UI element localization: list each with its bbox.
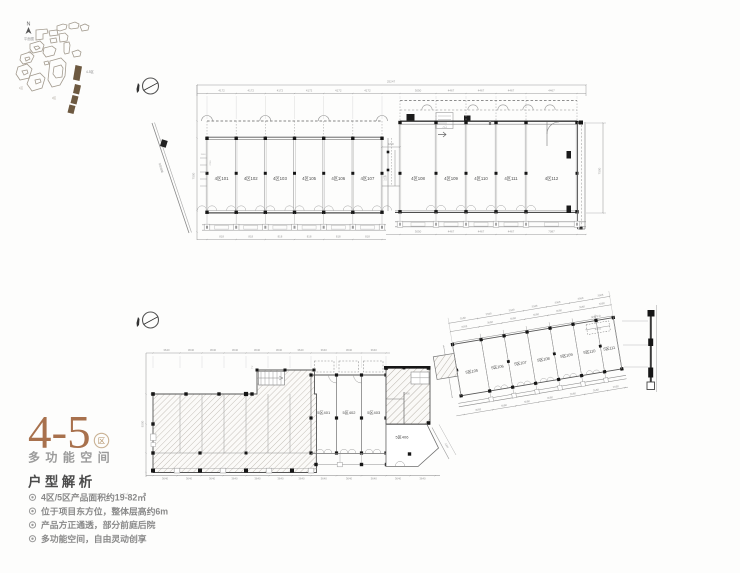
svg-text:4467: 4467 bbox=[448, 89, 455, 93]
svg-text:2400: 2400 bbox=[404, 393, 410, 396]
svg-text:4172: 4172 bbox=[277, 89, 284, 93]
svg-text:818: 818 bbox=[248, 234, 253, 238]
svg-text:过道: 过道 bbox=[383, 175, 387, 181]
svg-text:产品方正通透，部分前庭后院: 产品方正通透，部分前庭后院 bbox=[41, 519, 156, 530]
svg-text:818: 818 bbox=[307, 234, 312, 238]
svg-text:4区105: 4区105 bbox=[302, 176, 316, 181]
svg-text:1区: 1区 bbox=[19, 86, 24, 90]
svg-text:8200: 8200 bbox=[141, 420, 145, 427]
svg-text:3640: 3640 bbox=[210, 348, 217, 352]
svg-text:818: 818 bbox=[278, 234, 283, 238]
svg-text:4467: 4467 bbox=[508, 89, 515, 93]
svg-text:3640: 3640 bbox=[371, 348, 378, 352]
svg-text:5区402: 5区402 bbox=[343, 410, 357, 415]
svg-text:3640: 3640 bbox=[209, 477, 216, 481]
svg-text:平面图: 平面图 bbox=[24, 36, 35, 41]
svg-text:4467: 4467 bbox=[478, 89, 485, 93]
svg-text:4区110: 4区110 bbox=[474, 176, 488, 181]
svg-text:4区107: 4区107 bbox=[360, 176, 374, 181]
svg-text:4172: 4172 bbox=[364, 89, 371, 93]
svg-text:25247: 25247 bbox=[387, 80, 396, 84]
svg-text:4区102: 4区102 bbox=[244, 176, 258, 181]
svg-text:3050: 3050 bbox=[415, 89, 422, 93]
svg-text:5区401: 5区401 bbox=[317, 410, 331, 415]
svg-text:3640: 3640 bbox=[371, 477, 378, 481]
svg-text:3640: 3640 bbox=[298, 477, 305, 481]
svg-text:4467: 4467 bbox=[448, 230, 455, 234]
svg-text:818: 818 bbox=[365, 234, 370, 238]
svg-text:3640: 3640 bbox=[346, 348, 353, 352]
svg-text:4区111: 4区111 bbox=[504, 176, 518, 181]
svg-text:3640: 3640 bbox=[419, 477, 426, 481]
svg-text:入口: 入口 bbox=[442, 125, 447, 129]
svg-text:多功能空间: 多功能空间 bbox=[28, 450, 115, 465]
svg-text:7500: 7500 bbox=[192, 172, 196, 179]
svg-text:4区106: 4区106 bbox=[331, 176, 345, 181]
svg-text:3640: 3640 bbox=[188, 348, 195, 352]
svg-text:7087: 7087 bbox=[548, 230, 555, 234]
svg-text:上: 上 bbox=[251, 365, 254, 369]
svg-text:3640: 3640 bbox=[395, 477, 402, 481]
svg-text:1800: 1800 bbox=[388, 142, 394, 146]
svg-text:3640: 3640 bbox=[276, 348, 283, 352]
svg-text:4172: 4172 bbox=[335, 89, 342, 93]
svg-text:4172: 4172 bbox=[248, 89, 255, 93]
svg-text:3640: 3640 bbox=[321, 348, 328, 352]
svg-text:5区403: 5区403 bbox=[367, 410, 381, 415]
svg-text:3640: 3640 bbox=[346, 477, 353, 481]
svg-text:5区406: 5区406 bbox=[396, 435, 410, 440]
svg-text:区: 区 bbox=[98, 437, 106, 446]
svg-text:位于项目东方位，整体层高约6m: 位于项目东方位，整体层高约6m bbox=[41, 505, 168, 516]
svg-text:818: 818 bbox=[336, 234, 341, 238]
svg-text:N: N bbox=[27, 22, 31, 28]
svg-text:3区: 3区 bbox=[52, 96, 57, 100]
svg-text:2700: 2700 bbox=[210, 160, 212, 166]
svg-text:1500: 1500 bbox=[201, 154, 207, 156]
svg-text:3640: 3640 bbox=[186, 477, 193, 481]
svg-text:4467: 4467 bbox=[478, 230, 485, 234]
svg-text:4-5区: 4-5区 bbox=[86, 70, 95, 74]
svg-text:3640: 3640 bbox=[254, 477, 261, 481]
svg-text:户型解析: 户型解析 bbox=[28, 474, 96, 490]
svg-text:4区101: 4区101 bbox=[215, 176, 229, 181]
svg-text:7500: 7500 bbox=[598, 167, 602, 174]
svg-text:3640: 3640 bbox=[254, 348, 261, 352]
svg-text:4172: 4172 bbox=[218, 89, 225, 93]
svg-text:3050: 3050 bbox=[415, 230, 422, 234]
svg-text:4467: 4467 bbox=[548, 89, 555, 93]
svg-text:3640: 3640 bbox=[231, 477, 238, 481]
svg-text:4区112: 4区112 bbox=[545, 176, 559, 181]
svg-text:3640: 3640 bbox=[162, 477, 169, 481]
svg-text:3640: 3640 bbox=[277, 477, 284, 481]
svg-text:3640: 3640 bbox=[232, 348, 239, 352]
svg-text:818: 818 bbox=[219, 234, 224, 238]
svg-text:4区103: 4区103 bbox=[273, 176, 287, 181]
svg-text:4467: 4467 bbox=[508, 230, 515, 234]
svg-text:多功能空间，自由灵动创享: 多功能空间，自由灵动创享 bbox=[41, 533, 147, 544]
svg-text:2区: 2区 bbox=[28, 50, 33, 54]
svg-text:4172: 4172 bbox=[306, 89, 313, 93]
svg-text:4区109: 4区109 bbox=[444, 176, 458, 181]
svg-text:4区108: 4区108 bbox=[411, 176, 425, 181]
svg-text:3640: 3640 bbox=[321, 477, 328, 481]
svg-text:3640: 3640 bbox=[297, 348, 304, 352]
svg-text:3640: 3640 bbox=[163, 348, 170, 352]
svg-text:4区/5区产品面积约19-82㎡: 4区/5区产品面积约19-82㎡ bbox=[41, 492, 146, 503]
